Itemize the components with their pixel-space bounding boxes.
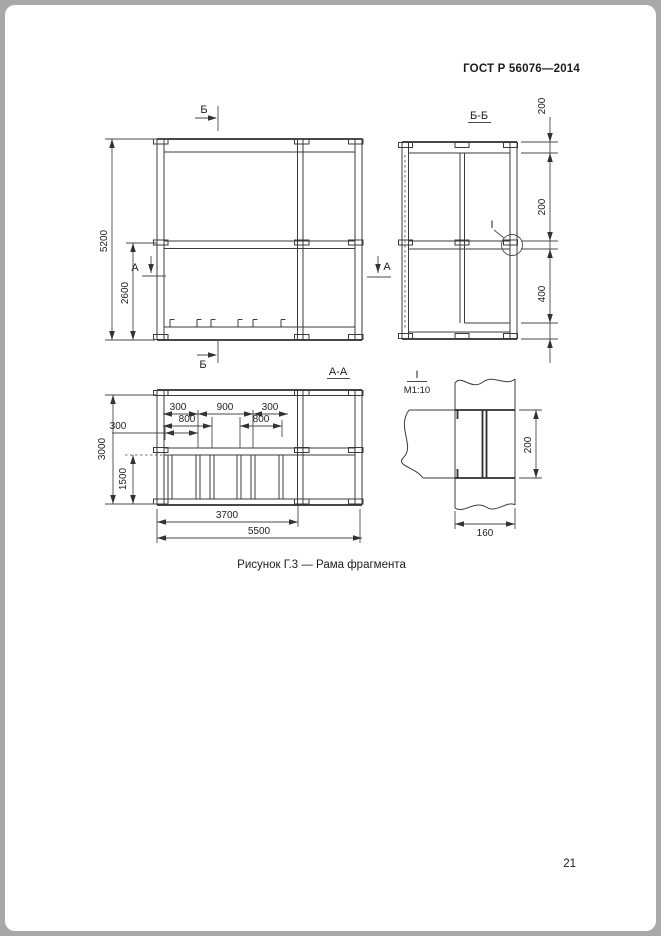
joint-profile	[455, 410, 515, 478]
detail-leader	[494, 230, 504, 238]
dim-2600: 2600	[120, 281, 131, 304]
dim-900: 900	[217, 402, 234, 413]
dim-1500: 1500	[118, 467, 129, 490]
page-number: 21	[563, 858, 576, 870]
dim-bottom-rail: 400	[537, 285, 548, 302]
section-bb-view: Б-Б I 200 200 400	[399, 97, 559, 363]
detail-scale: М1:10	[404, 385, 430, 396]
figure-caption: Рисунок Г.3 — Рама фрагмента	[5, 559, 638, 571]
section-mark-b-bottom: Б	[199, 359, 206, 371]
front-view: 5200 2600 Б Б А А	[99, 104, 391, 371]
section-bb-title: Б-Б	[470, 110, 488, 122]
dim-200-detail: 200	[523, 436, 534, 453]
dim-300-left: 300	[170, 402, 187, 413]
dim-3000: 3000	[97, 437, 108, 460]
dim-300-right: 300	[262, 402, 279, 413]
dim-top-rail: 200	[537, 97, 548, 114]
break-line-top	[455, 379, 515, 385]
dim-mid-rail: 200	[537, 198, 548, 215]
dim-3700: 3700	[216, 510, 239, 521]
section-mark-b-top: Б	[200, 104, 207, 116]
document-page: ГОСТ Р 56076—2014 5200 2600 Б Б А А	[5, 5, 656, 931]
figure-drawing: 5200 2600 Б Б А А Б-Б I 200 200 400	[5, 5, 656, 931]
break-line-left	[401, 410, 423, 478]
dim-800-left: 800	[179, 414, 196, 425]
dim-5200: 5200	[99, 229, 110, 252]
section-aa-view: А-А 300 900 300 800 800 300 3000 1500 37…	[97, 366, 363, 543]
dim-160: 160	[477, 528, 494, 539]
break-line-bottom	[455, 504, 515, 510]
channel-clips	[170, 320, 286, 328]
studs	[168, 455, 283, 499]
section-mark-a-left: А	[131, 262, 139, 274]
joint-caps	[154, 139, 364, 340]
detail-i-view: I М1:10 200 160	[401, 369, 542, 539]
detail-mark-title: I	[415, 369, 418, 381]
detail-mark-label: I	[490, 219, 493, 231]
section-mark-a-right: А	[383, 261, 391, 273]
dim-800-right: 800	[253, 414, 270, 425]
dim-5500: 5500	[248, 526, 271, 537]
dim-300-offset: 300	[110, 421, 127, 432]
section-aa-title: А-А	[329, 366, 348, 378]
